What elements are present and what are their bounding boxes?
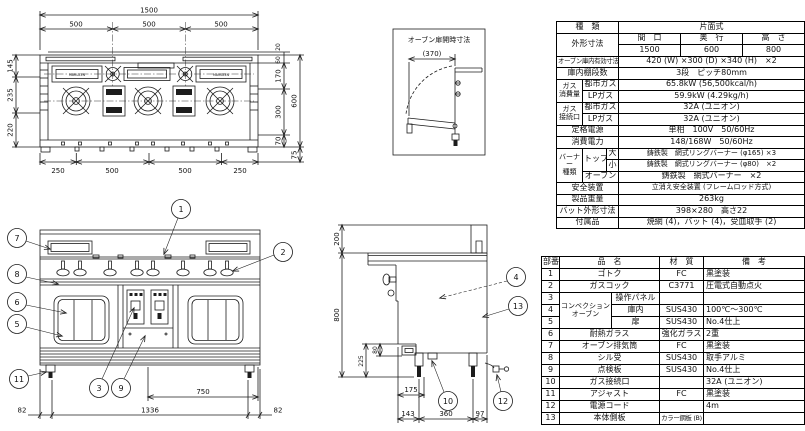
parts-name: シル受 [560, 353, 660, 365]
dim-97: 97 [476, 410, 485, 418]
spec-burner-large-value: 鋳鉄製 網式リングバーナー (φ165) ×3 [619, 148, 805, 160]
parts-no: 7 [542, 341, 560, 353]
parts-no: 3 [542, 293, 560, 305]
spec-burner-small-label: 小 [607, 160, 619, 172]
callout-12: 12 [494, 375, 513, 411]
parts-note [704, 293, 805, 305]
parts-note: No.4仕上 [704, 317, 805, 329]
callout-10: 10 [432, 361, 458, 411]
oven-door-box-title: オーブン扉開時寸法 [408, 35, 471, 44]
spec-shelf-value: 3段 ピッチ80mm [619, 68, 805, 80]
oven-door-open-detail: オーブン扉開時寸法 (370) [392, 28, 486, 156]
dim-82-right: 82 [274, 407, 283, 415]
dim-750: 750 [196, 388, 209, 396]
dim-right-75: 75 [291, 151, 299, 160]
parts-no: 1 [542, 269, 560, 281]
spec-outer-col-height: 高 さ [743, 33, 805, 45]
parts-name: 操作パネル [612, 293, 660, 305]
spec-type-value: 片面式 [619, 22, 805, 34]
svg-text:12: 12 [498, 397, 508, 406]
parts-header-name: 品 名 [560, 257, 660, 269]
plan-view-drawing: MARUZEN MARUZEN [0, 0, 395, 205]
parts-material: SUS430 [660, 365, 704, 377]
dim-right-170: 170 [275, 69, 283, 82]
svg-text:4: 4 [513, 273, 518, 282]
plan-dimensions: 1500 500 500 500 145 235 220 20 60 170 3… [7, 7, 305, 176]
spec-type-label: 種 類 [557, 22, 619, 34]
callout-4: 4 [440, 268, 526, 299]
spec-outer-val-height: 800 [743, 45, 805, 57]
parts-material [660, 401, 704, 413]
parts-name: 電源コード [560, 401, 660, 413]
dim-80: 80 [372, 346, 379, 354]
callout-6: 6 [8, 293, 67, 314]
plan-large-burner-2 [134, 87, 162, 115]
front-kick-stripes [40, 348, 260, 363]
spec-gas-lp-label: LPガス [583, 91, 619, 103]
dim-top-500-1: 500 [69, 21, 82, 29]
spec-table: 種 類 片面式 外形寸法 間 口 奥 行 高 さ 1500 600 800 オー… [556, 21, 805, 229]
spec-oven-inner-value: 420 (W) ×300 (D) ×340 (H) ×2 [619, 56, 805, 68]
parts-row-8: 8 シル受 SUS430 取手アルミ [542, 353, 805, 365]
parts-no: 13 [542, 413, 560, 425]
parts-material: FC [660, 269, 704, 281]
svg-text:7: 7 [14, 234, 19, 243]
parts-header-note: 備 考 [704, 257, 805, 269]
front-control-panel [118, 285, 178, 348]
front-knob-row [57, 261, 233, 276]
brand-label: MARUZEN [69, 73, 86, 77]
spec-gas-city-label: 都市ガス [583, 79, 619, 91]
svg-text:9: 9 [118, 384, 123, 393]
spec-burner-top-label: トップ [583, 148, 607, 171]
oven-door-open-profile [406, 66, 482, 146]
dim-225: 225 [358, 355, 365, 367]
spec-accessory-value: 焼網 (4)，バット (4)，受皿取手 (2) [619, 217, 805, 229]
parts-row-1: 1 ゴトク FC 黒塗装 [542, 269, 805, 281]
front-legs [46, 365, 254, 378]
parts-material: FC [660, 341, 704, 353]
svg-text:11: 11 [14, 375, 24, 384]
parts-name: ガスコック [560, 281, 660, 293]
dim-top-500-2: 500 [142, 21, 155, 29]
parts-no: 8 [542, 353, 560, 365]
spec-gas-consumption-label: ガス 消費量 [557, 79, 583, 102]
parts-note: 黒塗装 [704, 389, 805, 401]
dim-1336: 1336 [141, 407, 159, 415]
spec-pan-value: 398×280 高さ22 [619, 206, 805, 218]
spec-gas-conn-city-label: 都市ガス [583, 102, 619, 114]
spec-safety-label: 安全装置 [557, 183, 619, 195]
parts-note: 取手アルミ [704, 353, 805, 365]
parts-material: 強化ガラス [660, 329, 704, 341]
parts-material: SUS430 [660, 317, 704, 329]
dim-bottom-500-2: 500 [178, 167, 191, 175]
spec-burner-oven-value: 鋳鉄製 網式バーナー ×2 [619, 171, 805, 183]
parts-group-convection-oven: コンベクション オーブン [560, 293, 612, 329]
oven-door-open-dim: (370) [423, 50, 442, 58]
parts-name: 庫内 [612, 305, 660, 317]
callout-13: 13 [483, 297, 528, 318]
dim-overall-depth: 600 [291, 94, 299, 107]
parts-note: 100℃～300℃ [704, 305, 805, 317]
parts-no: 11 [542, 389, 560, 401]
brand-label: MARUZEN [213, 73, 230, 77]
side-dimensions: 200 800 225 80 175 143 360 97 [333, 225, 487, 423]
spec-burner-label: バーナー 種類 [557, 148, 583, 183]
spec-gas-conn-lp-value: 32A (ユニオン) [619, 114, 805, 126]
parts-note: 黒塗装 [704, 269, 805, 281]
parts-row-9: 9 点検板 SUS430 No.4仕上 [542, 365, 805, 377]
svg-text:2: 2 [280, 248, 285, 257]
front-view-drawing: 7 8 6 5 11 1 2 3 9 [0, 195, 340, 431]
side-view-drawing: 4 13 10 12 200 800 225 80 175 [330, 205, 545, 431]
dim-bottom-500-1: 500 [105, 167, 118, 175]
parts-header-material: 材 質 [660, 257, 704, 269]
svg-text:8: 8 [14, 270, 19, 279]
spec-burner-small-value: 鋳鉄製 網式リングバーナー (φ80) ×2 [619, 160, 805, 172]
parts-note: No.4仕上 [704, 365, 805, 377]
parts-note: 2重 [704, 329, 805, 341]
spec-outer-label: 外形寸法 [557, 33, 619, 56]
parts-row-13: 13 本体側板 カラー鋼板 (B) [542, 413, 805, 425]
parts-note [704, 413, 805, 425]
parts-no: 5 [542, 317, 560, 329]
parts-row-11: 11 アジャスト FC 黒塗装 [542, 389, 805, 401]
spec-gas-conn-city-value: 32A (ユニオン) [619, 102, 805, 114]
parts-name: 本体側板 [560, 413, 660, 425]
parts-no: 2 [542, 281, 560, 293]
spec-pan-label: バット外形寸法 [557, 206, 619, 218]
parts-name: ゴトク [560, 269, 660, 281]
svg-text:3: 3 [96, 384, 101, 393]
parts-row-12: 12 電源コード 4m [542, 401, 805, 413]
dim-right-60: 60 [275, 56, 282, 64]
parts-row-3: 3 コンベクション オーブン 操作パネル [542, 293, 805, 305]
spec-outer-col-width: 間 口 [619, 33, 681, 45]
parts-name: 扉 [612, 317, 660, 329]
parts-name: アジャスト [560, 389, 660, 401]
front-oven-doors [54, 296, 243, 344]
spec-shelf-label: 庫内棚段数 [557, 68, 619, 80]
parts-name: オーブン排気筒 [560, 341, 660, 353]
parts-material: SUS430 [660, 353, 704, 365]
callout-1: 1 [164, 200, 191, 255]
spec-outer-val-depth: 600 [681, 45, 743, 57]
parts-material: カラー鋼板 (B) [660, 413, 704, 425]
parts-material: FC [660, 389, 704, 401]
spec-weight-label: 製品重量 [557, 194, 619, 206]
parts-row-10: 10 ガス接続口 32A (ユニオン) [542, 377, 805, 389]
callout-11: 11 [10, 370, 47, 389]
parts-no: 4 [542, 305, 560, 317]
dim-left-220: 220 [7, 123, 15, 136]
front-dimensions: 750 82 1336 82 [18, 367, 283, 419]
parts-row-6: 6 耐熱ガラス 強化ガラス 2重 [542, 329, 805, 341]
dim-top-500-3: 500 [214, 21, 227, 29]
spec-burner-oven-label: オーブン [583, 171, 619, 183]
spec-gas-city-value: 65.8kW (56,500kcal/h) [619, 79, 805, 91]
svg-text:5: 5 [14, 320, 19, 329]
parts-material [660, 377, 704, 389]
parts-note: 4m [704, 401, 805, 413]
spec-drawing-sheet: MARUZEN MARUZEN [0, 0, 805, 431]
parts-name: ガス接続口 [560, 377, 660, 389]
spec-oven-inner-label: オーブン庫内有効寸法 [557, 56, 619, 68]
parts-note: 黒塗装 [704, 341, 805, 353]
plan-large-burner-1 [62, 87, 90, 115]
parts-row-7: 7 オーブン排気筒 FC 黒塗装 [542, 341, 805, 353]
parts-name: 点検板 [560, 365, 660, 377]
spec-burner-large-label: 大 [607, 148, 619, 160]
parts-no: 10 [542, 377, 560, 389]
spec-outer-col-depth: 奥 行 [681, 33, 743, 45]
dim-bottom-250-2: 250 [233, 167, 246, 175]
spec-gas-lp-value: 59.9kW (4.29kg/h) [619, 91, 805, 103]
dim-800: 800 [333, 308, 341, 321]
parts-material: C3771 [660, 281, 704, 293]
spec-power-value: 単相 100V 50/60Hz [619, 125, 805, 137]
parts-material: SUS430 [660, 305, 704, 317]
parts-no: 9 [542, 365, 560, 377]
dim-overall-width: 1500 [140, 7, 158, 15]
plan-large-burner-3 [206, 87, 234, 115]
spec-consumption-label: 消費電力 [557, 137, 619, 149]
parts-name: 耐熱ガラス [560, 329, 660, 341]
dim-175: 175 [404, 386, 417, 394]
dim-right-300: 300 [275, 105, 283, 118]
parts-row-2: 2 ガスコック C3771 圧電式自動点火 [542, 281, 805, 293]
dim-82-left: 82 [18, 407, 27, 415]
callout-7: 7 [8, 229, 51, 250]
dim-360: 360 [439, 410, 452, 418]
callout-8: 8 [8, 265, 59, 285]
parts-no: 6 [542, 329, 560, 341]
spec-power-label: 定格電源 [557, 125, 619, 137]
svg-text:10: 10 [443, 397, 453, 406]
parts-note: 32A (ユニオン) [704, 377, 805, 389]
spec-safety-value: 立消え安全装置 (フレームロッド方式) [619, 183, 805, 195]
dim-left-145: 145 [7, 59, 15, 72]
parts-note: 圧電式自動点火 [704, 281, 805, 293]
parts-table: 部番 品 名 材 質 備 考 1 ゴトク FC 黒塗装 2 ガスコック C377… [541, 256, 805, 425]
dim-bottom-250-1: 250 [51, 167, 64, 175]
svg-text:13: 13 [513, 302, 523, 311]
dim-right-70: 70 [275, 137, 283, 146]
callout-9: 9 [112, 336, 146, 398]
front-body [40, 230, 260, 365]
spec-outer-val-width: 1500 [619, 45, 681, 57]
svg-text:1: 1 [178, 205, 183, 214]
parts-material [660, 293, 704, 305]
spec-accessory-label: 付属品 [557, 217, 619, 229]
spec-consumption-value: 148/168W 50/60Hz [619, 137, 805, 149]
parts-no: 12 [542, 401, 560, 413]
parts-header-no: 部番 [542, 257, 560, 269]
side-profile [368, 225, 509, 377]
spec-gas-conn-lp-label: LPガス [583, 114, 619, 126]
spec-weight-value: 263kg [619, 194, 805, 206]
spec-gas-conn-label: ガス 接続口 [557, 102, 583, 125]
svg-text:6: 6 [14, 298, 19, 307]
dim-143: 143 [401, 410, 414, 418]
dim-200: 200 [333, 232, 341, 245]
dim-left-235: 235 [7, 88, 15, 101]
dim-right-20: 20 [275, 43, 282, 51]
